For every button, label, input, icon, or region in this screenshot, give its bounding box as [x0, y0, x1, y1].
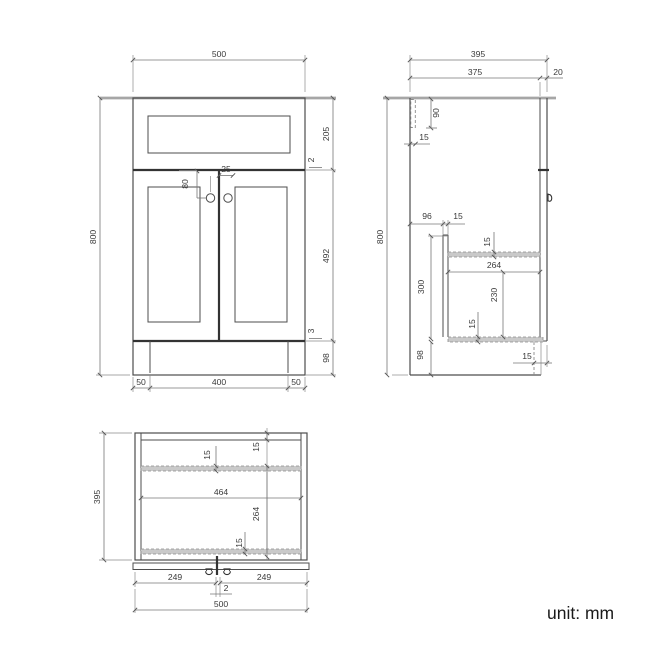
- dim-bottom-thickness: 15: [467, 319, 477, 329]
- side-hanger-bracket: [411, 100, 416, 128]
- dim-side-height: 800: [375, 230, 385, 245]
- dim-bottom-rail-thickness: 15: [234, 538, 244, 548]
- dim-door-gap: 2: [224, 583, 229, 593]
- bottom-view: 395 15 15 264 464 15 249 249 2: [92, 428, 309, 613]
- bottom-door-strip: [133, 563, 309, 570]
- dim-rail-thickness: 15: [202, 450, 212, 460]
- dim-front-width: 500: [212, 49, 227, 59]
- dim-panel-thickness: 15: [453, 211, 463, 221]
- dim-door-thickness: 20: [553, 67, 563, 77]
- dim-carcass-depth: 375: [468, 67, 483, 77]
- dim-door-plinth-gap: 3: [306, 328, 316, 333]
- dim-drawer-height: 205: [321, 127, 331, 142]
- dim-bottom-interior-depth: 264: [251, 507, 261, 522]
- front-drawer-panel: [148, 116, 290, 153]
- dim-side-plinth-height: 98: [415, 350, 425, 360]
- left-knob-icon: [206, 194, 214, 202]
- dim-drawer-door-gap: 2: [306, 157, 316, 162]
- dim-interior-width: 464: [214, 487, 229, 497]
- dim-panel-height: 300: [416, 280, 426, 295]
- front-right-door-panel: [235, 187, 287, 322]
- dim-door-height: 492: [321, 249, 331, 264]
- bottom-front-rail: [141, 466, 301, 471]
- dim-plinth-inset-left: 50: [136, 377, 146, 387]
- dim-bottom-width: 500: [214, 599, 229, 609]
- dim-front-height: 800: [88, 230, 98, 245]
- right-knob-icon: [224, 194, 232, 202]
- dim-hanger-width: 15: [419, 132, 429, 142]
- vanity-technical-drawing: 500 800 205 2 492 3 98 80 25: [0, 0, 650, 650]
- dim-interior-height: 230: [489, 288, 499, 303]
- dim-plinth-recess: 15: [522, 351, 532, 361]
- dim-bottom-depth: 395: [92, 490, 102, 505]
- front-view: 500 800 205 2 492 3 98 80 25: [88, 49, 336, 392]
- technical-drawing-page: 500 800 205 2 492 3 98 80 25: [0, 0, 650, 650]
- dim-knob-from-center: 25: [221, 164, 231, 174]
- dim-plinth-height: 98: [321, 353, 331, 363]
- dim-shelf-thickness: 15: [482, 237, 492, 247]
- side-view: 395 375 20 800 90 15 96 15 30: [375, 49, 563, 375]
- dim-panel-from-back: 96: [422, 211, 432, 221]
- dim-plinth-width: 400: [212, 377, 227, 387]
- dim-interior-depth: 264: [487, 260, 502, 270]
- side-bottom-panel: [448, 337, 543, 342]
- dim-door-right-width: 249: [257, 572, 272, 582]
- side-knob-icon: [548, 194, 552, 202]
- bottom-lower-rail: [141, 549, 301, 554]
- dim-plinth-inset-right: 50: [291, 377, 301, 387]
- bottom-dimensions: 395 15 15 264 464 15 249 249 2: [92, 428, 307, 613]
- dim-door-left-width: 249: [168, 572, 183, 582]
- front-left-door-panel: [148, 187, 200, 322]
- dim-back-thickness: 15: [251, 442, 261, 452]
- dim-knob-from-top: 80: [180, 179, 190, 189]
- dim-hanger-height: 90: [431, 108, 441, 118]
- unit-note: unit: mm: [547, 603, 614, 624]
- dim-side-depth: 395: [471, 49, 486, 59]
